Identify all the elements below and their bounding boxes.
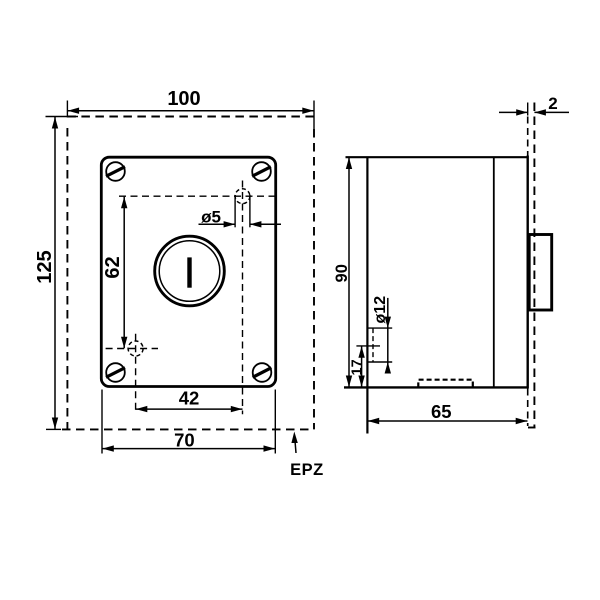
svg-text:65: 65	[431, 401, 452, 422]
svg-text:ø5: ø5	[201, 208, 221, 227]
svg-text:100: 100	[167, 88, 200, 110]
svg-text:ø12: ø12	[372, 296, 389, 324]
svg-text:125: 125	[34, 250, 56, 283]
svg-text:90: 90	[333, 264, 351, 282]
svg-text:2: 2	[548, 94, 557, 113]
svg-text:42: 42	[179, 387, 200, 408]
svg-text:17: 17	[349, 359, 365, 375]
svg-text:62: 62	[102, 256, 124, 278]
svg-text:EPZ: EPZ	[290, 461, 324, 479]
svg-text:70: 70	[174, 430, 195, 451]
